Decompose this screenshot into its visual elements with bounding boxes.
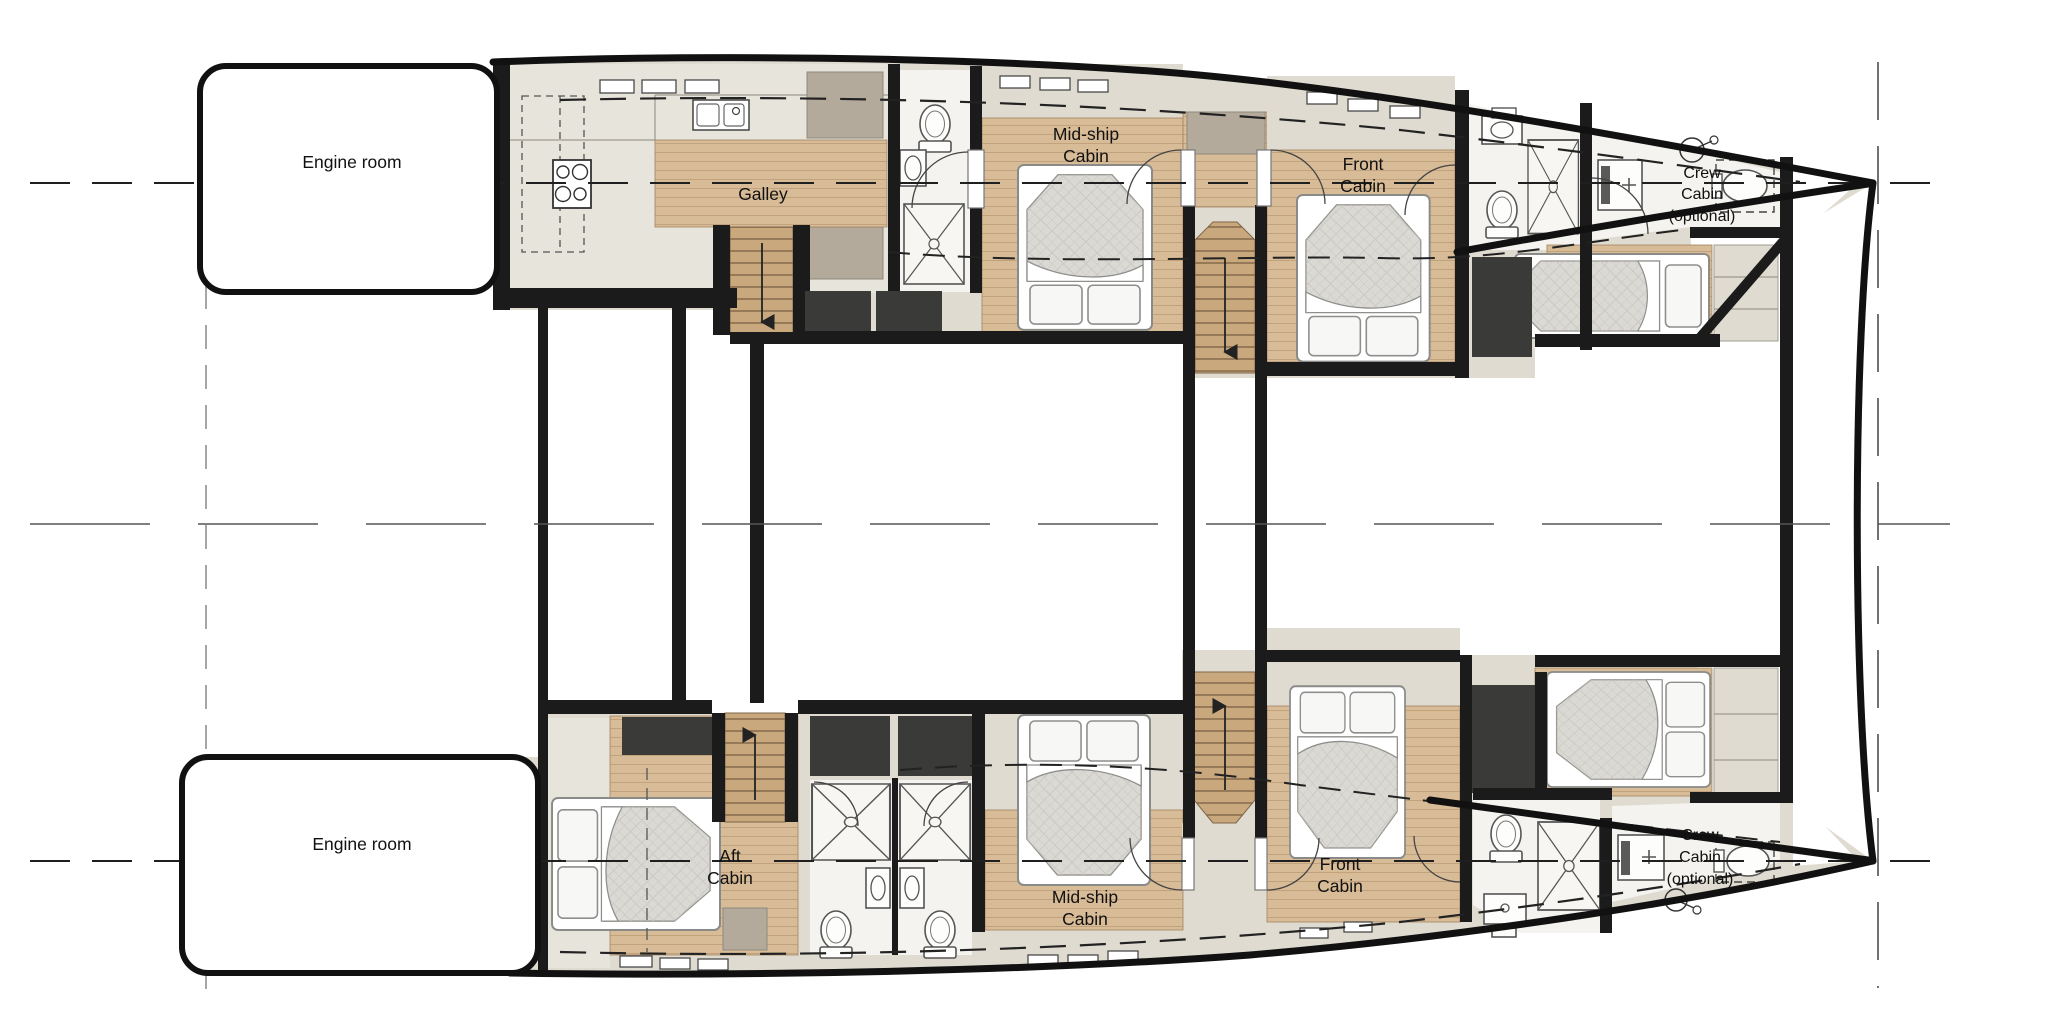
window [642,80,676,93]
shower-icon [1538,822,1600,910]
double-bed [1018,715,1150,885]
galley-label: Galley [738,184,788,204]
window [1000,76,1030,88]
shower-icon [904,204,964,284]
floor-plan-canvas: Engine room Engine room Galley Mid-ship … [0,0,2048,1030]
window [698,959,728,970]
double-bed [1018,165,1152,330]
cabinet [723,908,767,950]
stairs-up-icon [725,713,785,822]
engine-room-top-box [200,66,497,292]
shower-icon [812,784,890,860]
crew-top-label: Crew [1683,165,1721,182]
front-bottom-label: Cabin [1317,876,1363,896]
window [660,958,690,969]
aft-cabin [548,713,798,970]
void [622,717,715,755]
double-bed [1290,686,1405,858]
crew-top-label: Cabin [1681,186,1723,203]
window [620,956,652,967]
shower-icon [900,784,970,860]
window [1390,106,1420,118]
aft-cabin-label: Cabin [707,868,753,888]
toilet-icon [1490,815,1522,862]
wardrobe [1472,685,1535,793]
engine-room-bottom-box [182,757,538,973]
shelves [1714,668,1778,808]
front-bottom-label: Front [1320,854,1361,874]
double-bed [552,798,720,930]
window [1078,80,1108,92]
midship-bottom-label: Mid-ship [1052,887,1118,907]
floor-plan-svg: Engine room Engine room Galley Mid-ship … [0,0,2048,1030]
washbasin-icon [866,868,890,908]
toilet-icon [919,105,951,152]
bow-crossbeam [1857,183,1873,861]
window [685,80,719,93]
crew-top-label: (optional) [1669,208,1736,225]
void [898,716,972,776]
single-bed [1515,254,1709,338]
sink-icon [693,100,749,130]
washbasin-icon [900,868,924,908]
double-bed [1547,672,1710,787]
engine-room-top-label: Engine room [302,152,401,172]
window [1040,78,1070,90]
window [1344,922,1372,932]
engine-room-bottom-label: Engine room [312,834,411,854]
window [1348,99,1378,111]
crew-bottom-label: Crew [1681,827,1719,844]
galley-cabinet [807,227,883,279]
front-top-label: Front [1343,154,1384,174]
stairs-down-icon [730,227,793,334]
midship-bottom-label: Cabin [1062,909,1108,929]
window [600,80,634,93]
toilet-icon [1486,191,1518,238]
bathroom-bottom-a [810,780,892,958]
crew-bottom-label: (optional) [1667,871,1734,888]
aft-cabin-label: Aft [719,846,741,866]
bathroom-top-1 [900,70,970,292]
double-bed [1297,195,1430,362]
washbasin-icon [1618,835,1664,880]
midship-top-label: Mid-ship [1053,124,1119,144]
bathroom-bottom-b [898,780,972,958]
void [810,716,890,776]
front-top-label: Cabin [1340,176,1386,196]
crew-bottom-label: Cabin [1679,849,1721,866]
midship-top-label: Cabin [1063,146,1109,166]
wardrobe [1472,257,1532,357]
shower-icon [1528,140,1578,234]
galley-cabinet [807,72,883,138]
toilet-icon [820,911,852,958]
